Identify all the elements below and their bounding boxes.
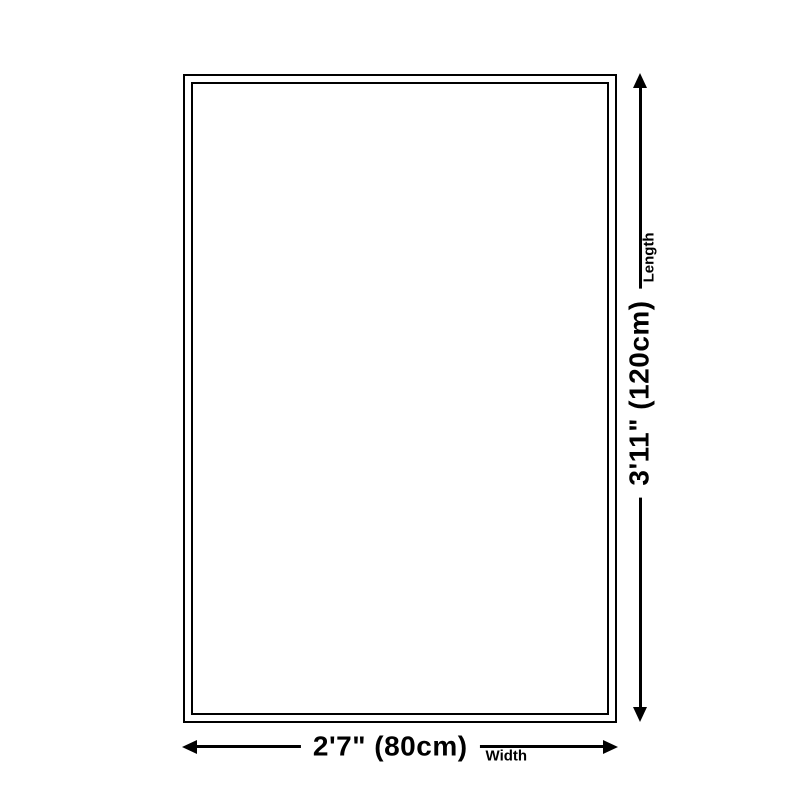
length-label: Length <box>641 232 656 282</box>
rug-inner-border <box>191 82 609 715</box>
length-value: 3'11" (120cm) <box>623 288 658 497</box>
arrowhead-right-icon <box>603 740 618 754</box>
width-dimension-label: 2'7" (80cm) Width <box>301 730 527 765</box>
rug-outline <box>183 74 617 723</box>
width-label: Width <box>486 748 528 763</box>
arrowhead-down-icon <box>633 707 647 722</box>
arrowhead-left-icon <box>182 740 197 754</box>
length-dimension-label: 3'11" (120cm) Length <box>623 232 658 497</box>
arrowhead-up-icon <box>633 73 647 88</box>
size-diagram: 3'11" (120cm) Length 2'7" (80cm) Width <box>0 0 800 800</box>
width-value: 2'7" (80cm) <box>301 730 480 765</box>
